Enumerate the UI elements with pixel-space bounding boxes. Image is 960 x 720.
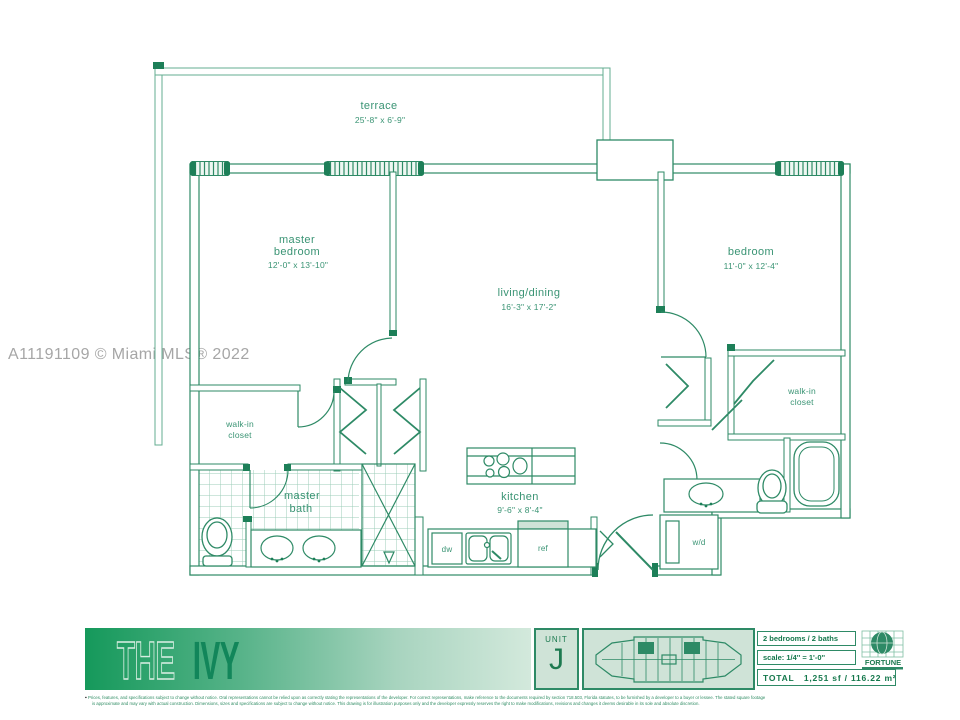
unit-box: UNIT J: [534, 628, 579, 690]
master-bath-label-2: bath: [289, 503, 312, 515]
living-dining-label: living/dining: [498, 287, 561, 299]
floorplan-page: A11191109 © Miami MLS® 2022: [0, 0, 960, 720]
total-area-box: TOTAL 1,251 sf / 116.22 m²: [757, 669, 896, 686]
bath2-toilet: [757, 470, 787, 513]
living-dining-dims: 16'-3" x 17'-2": [501, 302, 556, 312]
terrace-label: terrace: [360, 100, 397, 112]
disclaimer-line-2: is approximate and may vary with actual …: [92, 701, 700, 706]
fortune-wordmark: FORTUNE: [865, 658, 901, 667]
bathtub-fixture: [794, 442, 839, 506]
fortune-logo: FORTUNE: [860, 630, 906, 670]
logo-word-the: THE: [117, 632, 175, 690]
beds-baths-box: 2 bedrooms / 2 baths: [757, 631, 856, 646]
unit-letter: J: [549, 643, 564, 677]
master-bath-label-1: master: [284, 490, 320, 502]
bath2-vanity: [664, 479, 760, 512]
bedroom-label: bedroom: [728, 246, 774, 258]
master-bath-toilet: [202, 518, 232, 566]
disclaimer-text: ▪ Prices, features, and specifications s…: [85, 695, 907, 706]
walkin-closet-right-label-1: walk-in: [787, 386, 816, 396]
washer-dryer-closet: [660, 515, 718, 569]
building-keyplan: [582, 628, 755, 690]
kitchen-island: [467, 448, 575, 484]
master-bedroom-dims: 12'-0" x 13'-10": [268, 260, 328, 270]
keyplan-unit-highlight-left: [638, 642, 654, 654]
dishwasher-label: dw: [442, 545, 453, 554]
disclaimer-line-1: Prices, features, and specifications sub…: [88, 695, 765, 700]
entry-door: [598, 515, 653, 576]
bedroom-dims: 11'-0" x 12'-4": [724, 261, 779, 271]
fortune-globe-icon: FORTUNE: [860, 630, 906, 670]
shower-fixture: [362, 464, 415, 566]
closet-bifold-doors: [340, 364, 688, 454]
walkin-closet-left-label-2: closet: [228, 430, 252, 440]
kitchen-counter: [428, 521, 596, 567]
the-ivy-logo: THE IVY: [85, 628, 531, 690]
keyplan-drawing: [584, 630, 753, 688]
master-bedroom-label-1: master: [279, 234, 315, 246]
washer-dryer-label: w/d: [691, 538, 705, 547]
master-bedroom-label-2: bedroom: [274, 246, 320, 258]
walkin-closet-left-label-1: walk-in: [225, 419, 254, 429]
master-bath-vanity: [251, 530, 361, 567]
walkin-closet-right-label-2: closet: [790, 397, 814, 407]
terrace-dims: 25'-8" x 6'-9": [355, 115, 405, 125]
logo-word-ivy: IVY: [193, 632, 240, 690]
disclaimer-bullet-icon: ▪: [85, 695, 87, 701]
kitchen-label: kitchen: [501, 491, 539, 503]
scale-box: scale: 1/4'' = 1'-0'': [757, 650, 856, 665]
floor-plan: terrace 25'-8" x 6'-9" master bedroom 12…: [0, 0, 960, 720]
kitchen-dims: 9'-6" x 8'-4": [497, 505, 542, 515]
the-ivy-logo-bar: THE IVY: [85, 628, 531, 690]
keyplan-unit-highlight-right: [684, 642, 700, 654]
refrigerator-label: ref: [538, 544, 549, 553]
